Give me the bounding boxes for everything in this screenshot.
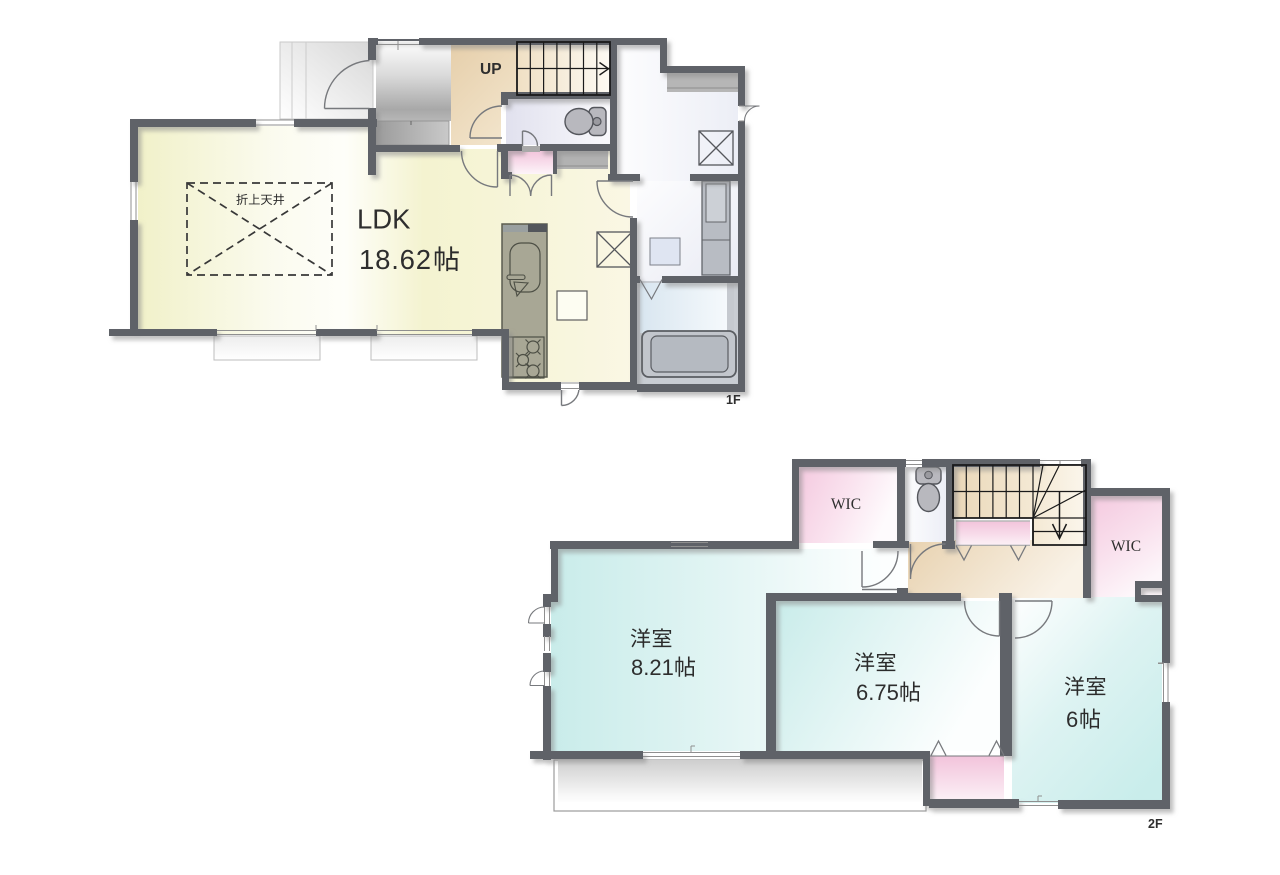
svg-text:LDK: LDK — [357, 204, 411, 235]
svg-text:8.21: 8.21 — [631, 655, 674, 680]
svg-text:6: 6 — [1066, 707, 1078, 732]
svg-text:6.75: 6.75 — [856, 680, 899, 705]
svg-text:2F: 2F — [1148, 817, 1163, 831]
svg-text:1F: 1F — [726, 393, 741, 407]
svg-text:UP: UP — [480, 61, 502, 78]
svg-text:18.62: 18.62 — [359, 244, 432, 275]
svg-text:WIC: WIC — [1111, 538, 1141, 555]
svg-text:WIC: WIC — [831, 496, 861, 513]
